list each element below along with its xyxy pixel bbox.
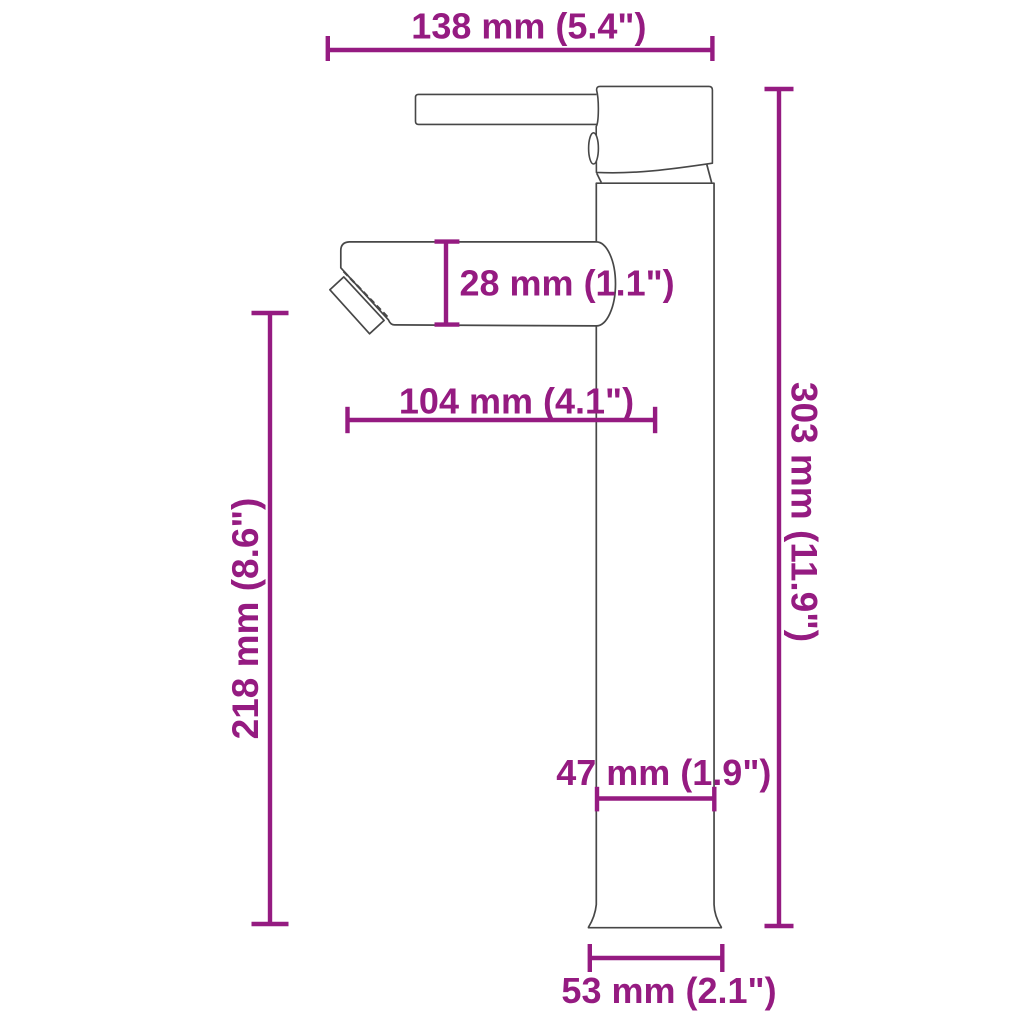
svg-text:104 mm (4.1"): 104 mm (4.1")	[399, 380, 634, 421]
svg-text:28 mm (1.1"): 28 mm (1.1")	[460, 263, 675, 304]
svg-text:303 mm (11.9"): 303 mm (11.9")	[784, 382, 825, 642]
svg-text:218 mm (8.6"): 218 mm (8.6")	[225, 498, 266, 740]
svg-text:53 mm (2.1"): 53 mm (2.1")	[561, 970, 776, 1011]
svg-text:138 mm (5.4"): 138 mm (5.4")	[411, 6, 646, 47]
svg-text:47 mm (1.9"): 47 mm (1.9")	[556, 752, 771, 793]
